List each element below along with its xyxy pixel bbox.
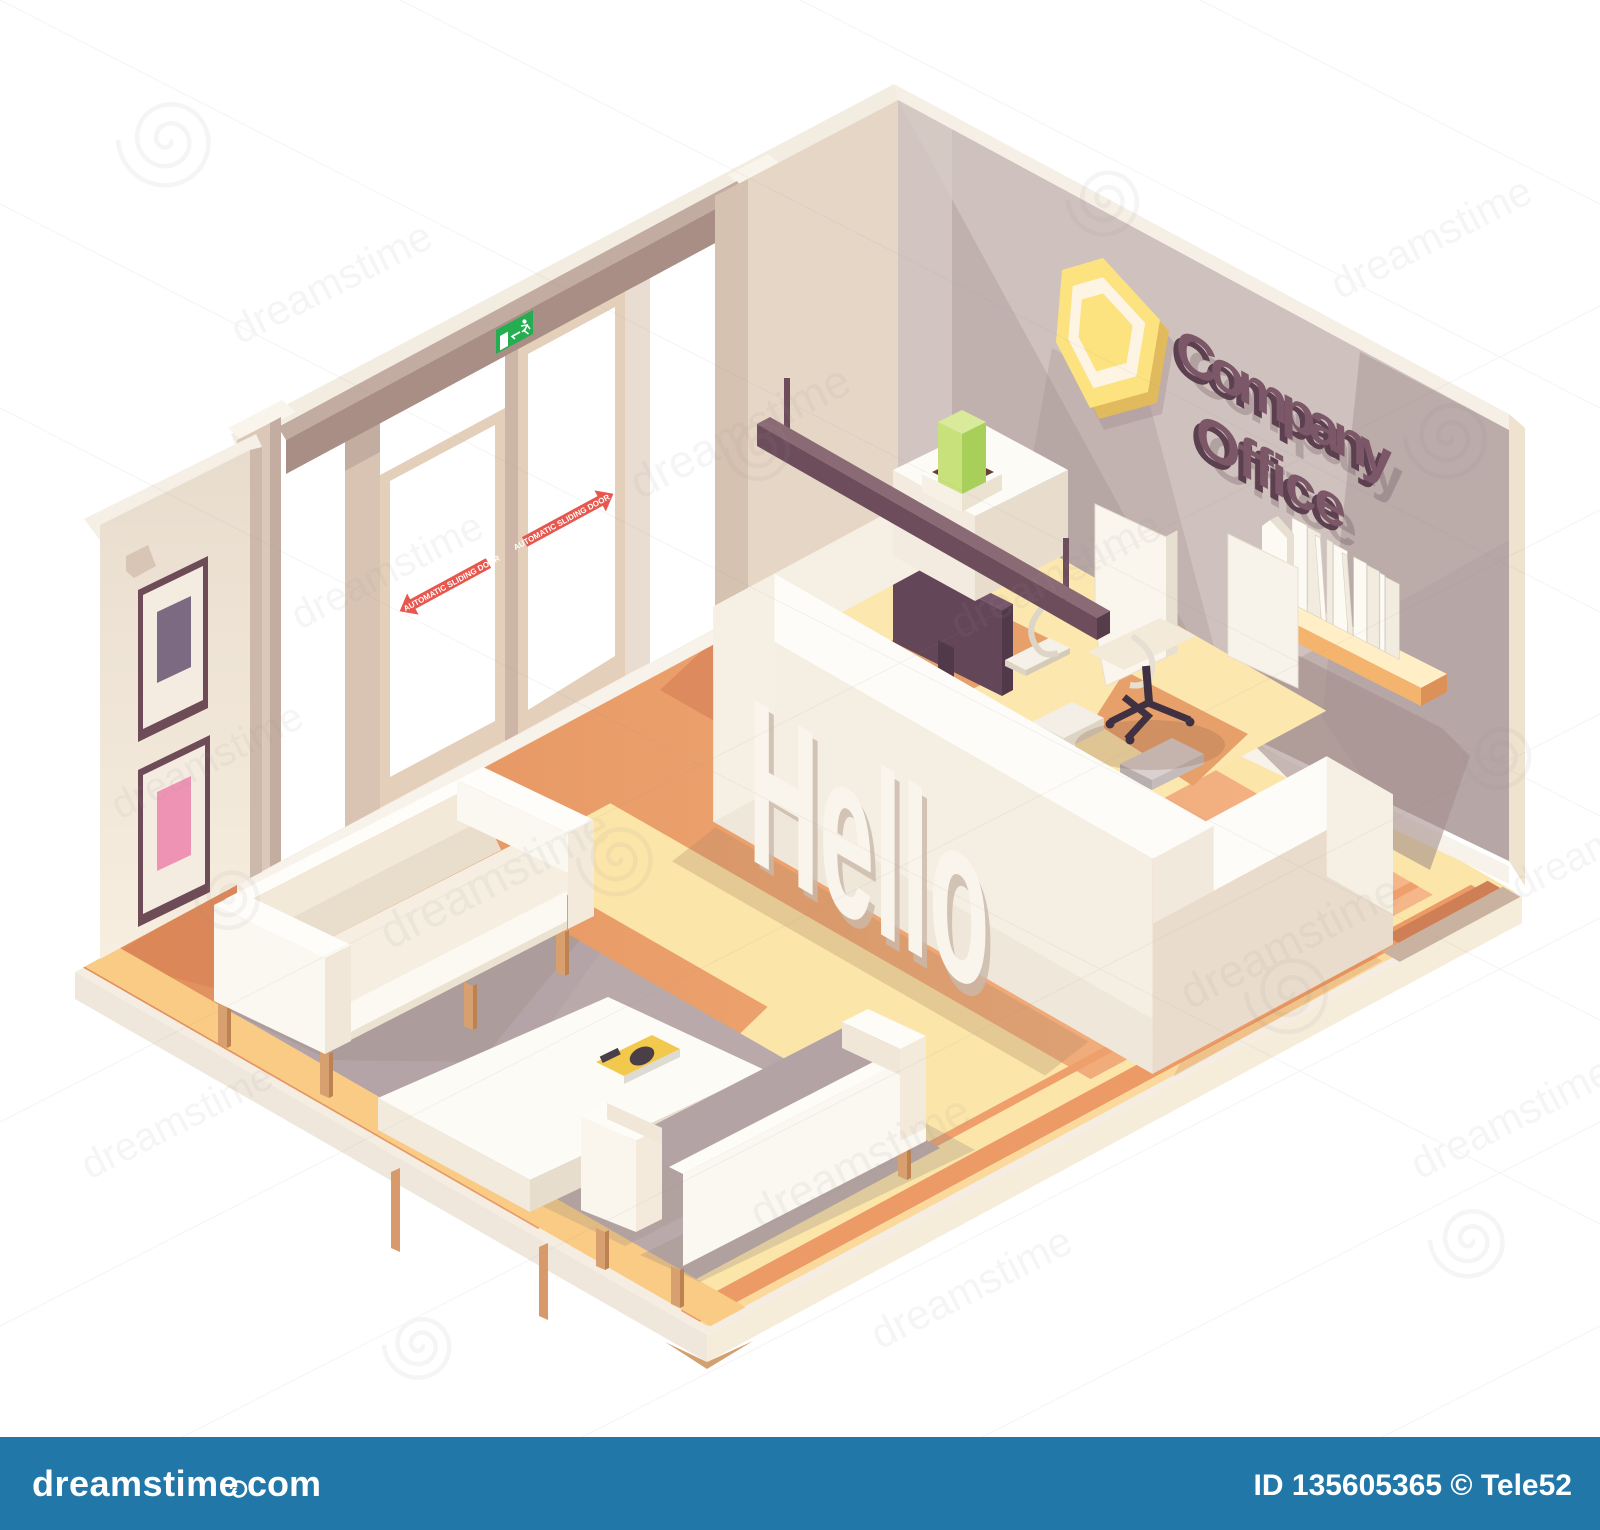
svg-text:ID 135605365 © Tele52: ID 135605365 © Tele52 [1254, 1469, 1572, 1502]
svg-text:com: com [247, 1463, 321, 1504]
svg-text:dreamstime: dreamstime [32, 1463, 239, 1504]
